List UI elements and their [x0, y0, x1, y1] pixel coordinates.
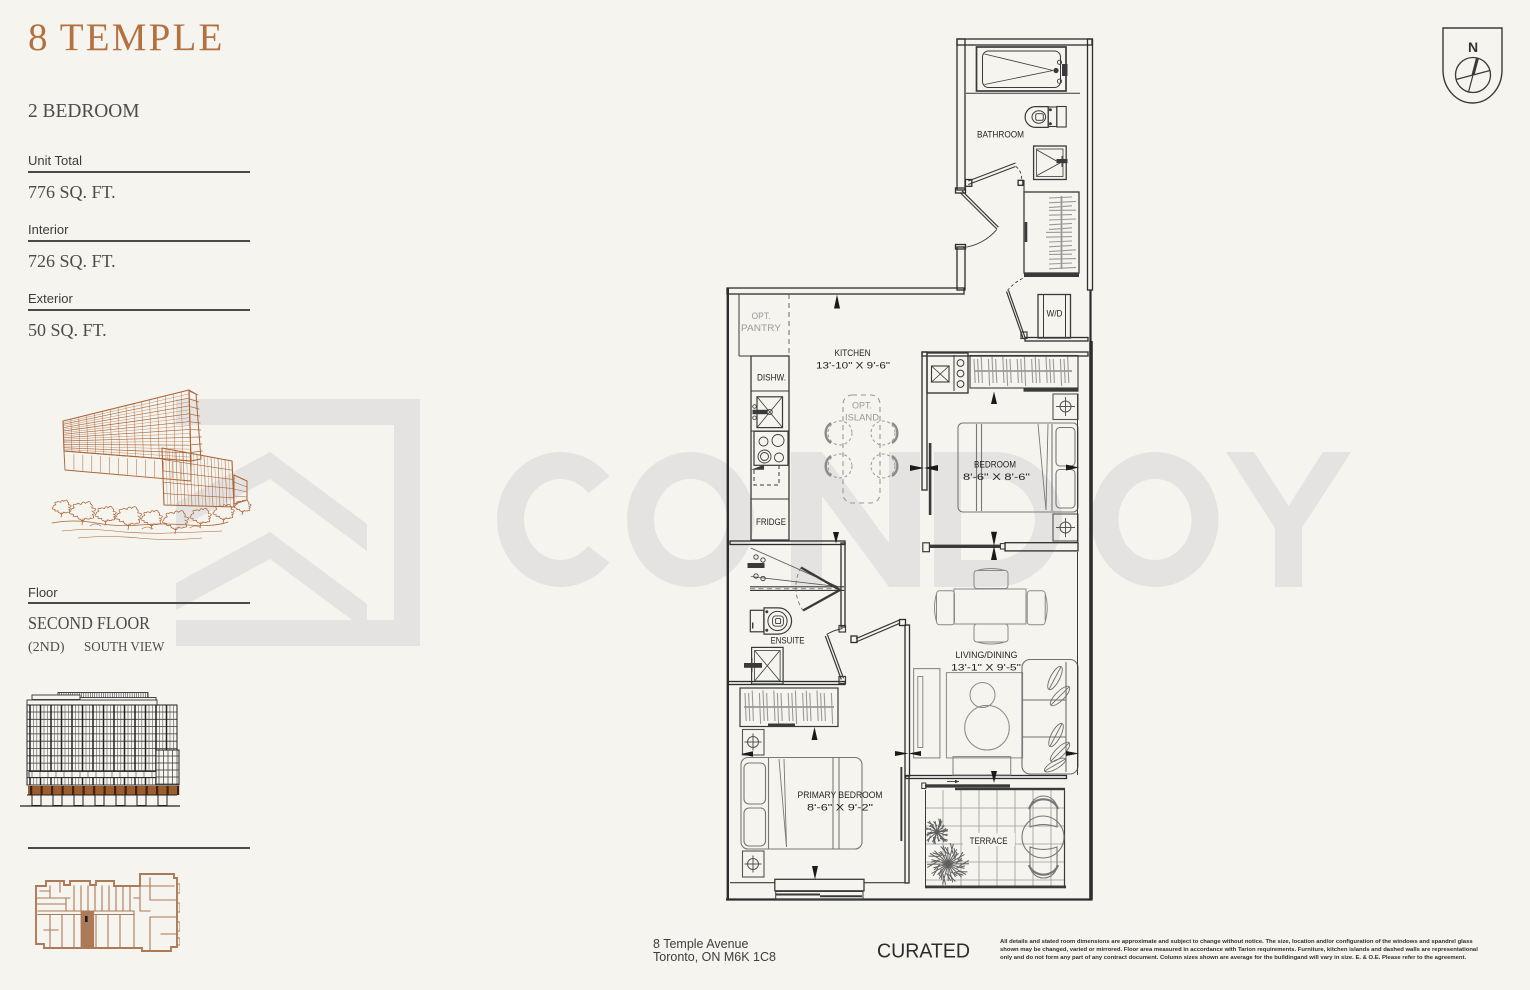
svg-text:8'-6" X 8'-6": 8'-6" X 8'-6" [963, 472, 1030, 483]
svg-text:8'-6" X 9'-2": 8'-6" X 9'-2" [807, 803, 873, 814]
svg-text:ISLAND: ISLAND [845, 413, 879, 424]
svg-text:BEDROOM: BEDROOM [974, 460, 1016, 471]
svg-text:13'-1" X 9'-5": 13'-1" X 9'-5" [951, 663, 1021, 674]
svg-text:OPT.: OPT. [852, 401, 872, 412]
svg-text:FRIDGE: FRIDGE [756, 517, 786, 528]
svg-text:CURATED: CURATED [877, 940, 970, 963]
svg-text:ENSUITE: ENSUITE [771, 636, 805, 647]
svg-text:LIVING/DINING: LIVING/DINING [956, 650, 1018, 661]
svg-text:W/D: W/D [1047, 309, 1063, 320]
svg-text:PANTRY: PANTRY [741, 323, 782, 334]
svg-text:BATHROOM: BATHROOM [977, 130, 1024, 141]
svg-text:N: N [1468, 39, 1478, 55]
svg-text:OPT.: OPT. [752, 311, 771, 322]
svg-text:TERRACE: TERRACE [970, 836, 1008, 847]
svg-text:PRIMARY BEDROOM: PRIMARY BEDROOM [798, 790, 883, 801]
svg-text:DISHW.: DISHW. [757, 373, 786, 384]
svg-text:KITCHEN: KITCHEN [835, 348, 871, 359]
svg-text:13'-10" X 9'-6": 13'-10" X 9'-6" [816, 361, 890, 372]
